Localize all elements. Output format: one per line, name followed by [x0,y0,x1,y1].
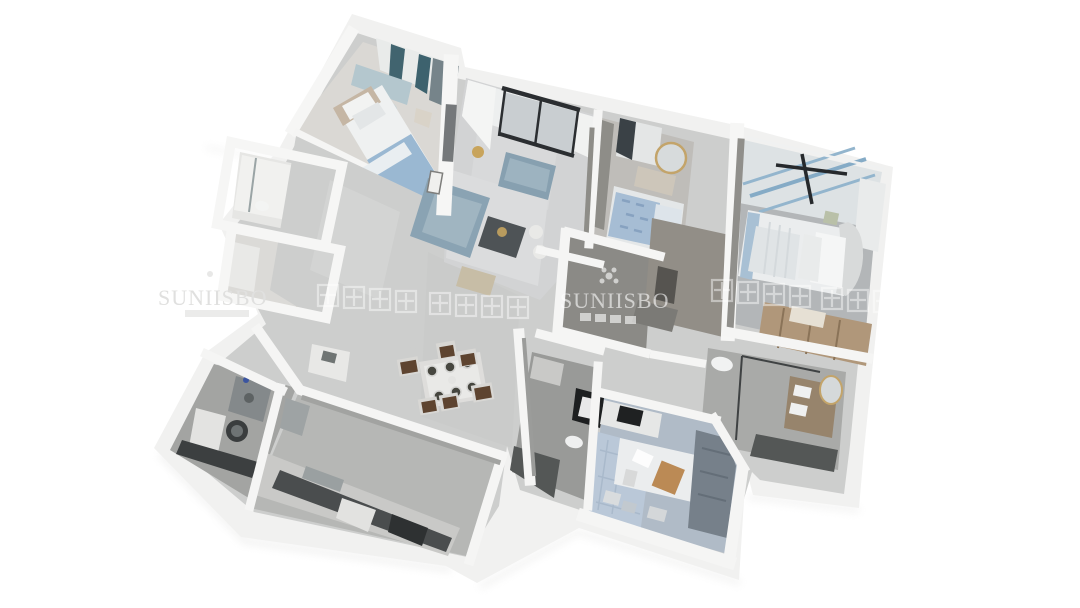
svg-text:SUNIISBO: SUNIISBO [158,285,267,310]
svg-text:SUNIISBO: SUNIISBO [560,288,669,313]
